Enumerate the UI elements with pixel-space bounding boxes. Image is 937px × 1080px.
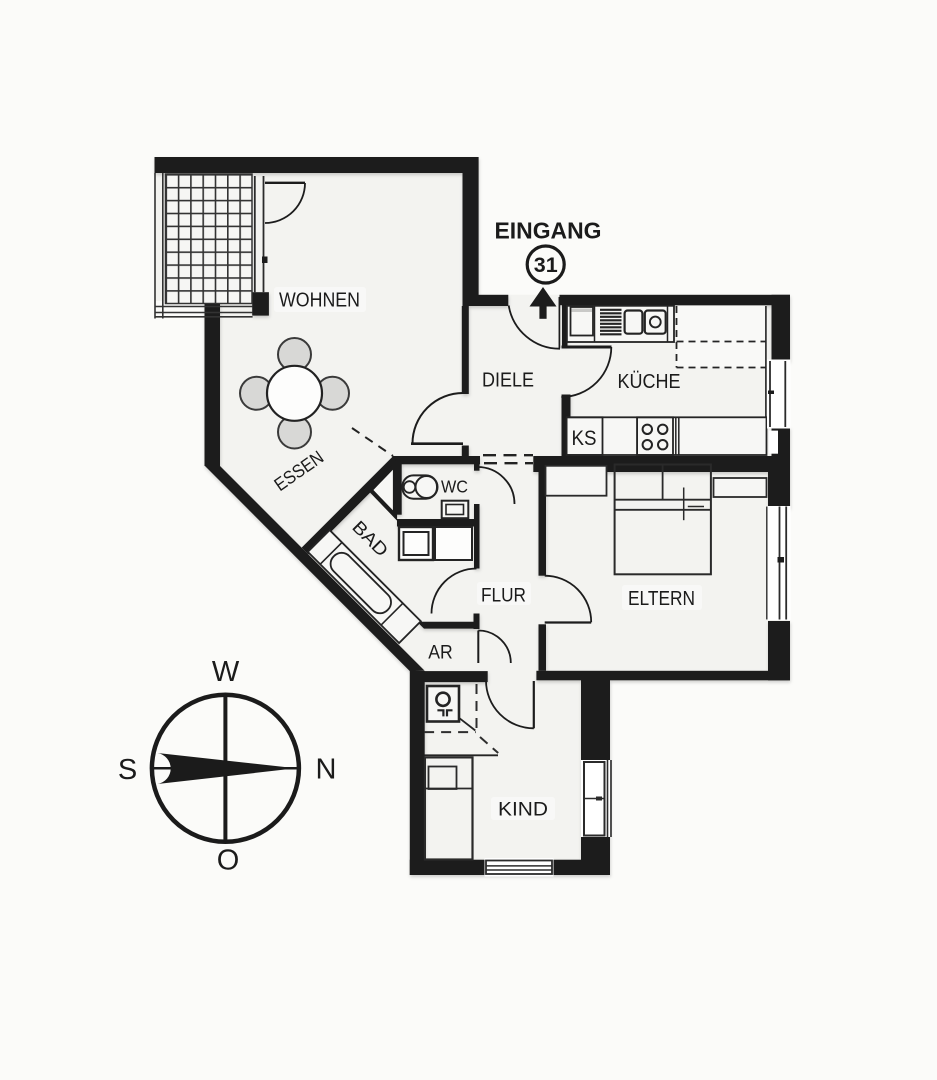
svg-text:EINGANG: EINGANG (495, 218, 602, 244)
svg-text:O: O (217, 845, 240, 877)
svg-text:31: 31 (534, 253, 558, 277)
svg-text:KS: KS (572, 427, 597, 450)
svg-text:KIND: KIND (498, 799, 548, 821)
svg-text:N: N (316, 754, 337, 786)
svg-text:WC: WC (441, 477, 468, 497)
svg-text:KÜCHE: KÜCHE (618, 371, 681, 393)
svg-text:ELTERN: ELTERN (628, 588, 695, 610)
svg-text:AR: AR (428, 643, 453, 664)
svg-text:FLUR: FLUR (481, 585, 526, 607)
svg-text:WOHNEN: WOHNEN (279, 289, 360, 312)
svg-text:S: S (118, 754, 137, 786)
svg-text:W: W (212, 656, 240, 688)
svg-text:DIELE: DIELE (482, 370, 534, 392)
